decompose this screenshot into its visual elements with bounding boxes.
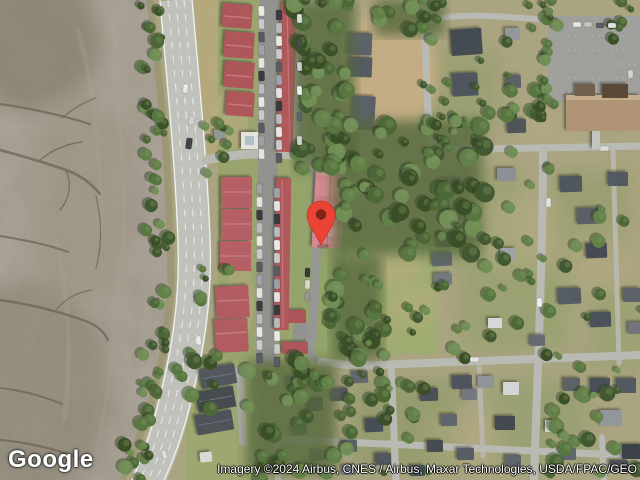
google-logo[interactable]: Google bbox=[8, 446, 94, 474]
imagery-attribution: Imagery ©2024 Airbus, CNES / Airbus, Max… bbox=[217, 462, 637, 476]
satellite-imagery bbox=[0, 0, 640, 480]
pin-inner-dot bbox=[316, 209, 326, 219]
map-viewport[interactable]: Google Imagery ©2024 Airbus, CNES / Airb… bbox=[0, 0, 640, 480]
